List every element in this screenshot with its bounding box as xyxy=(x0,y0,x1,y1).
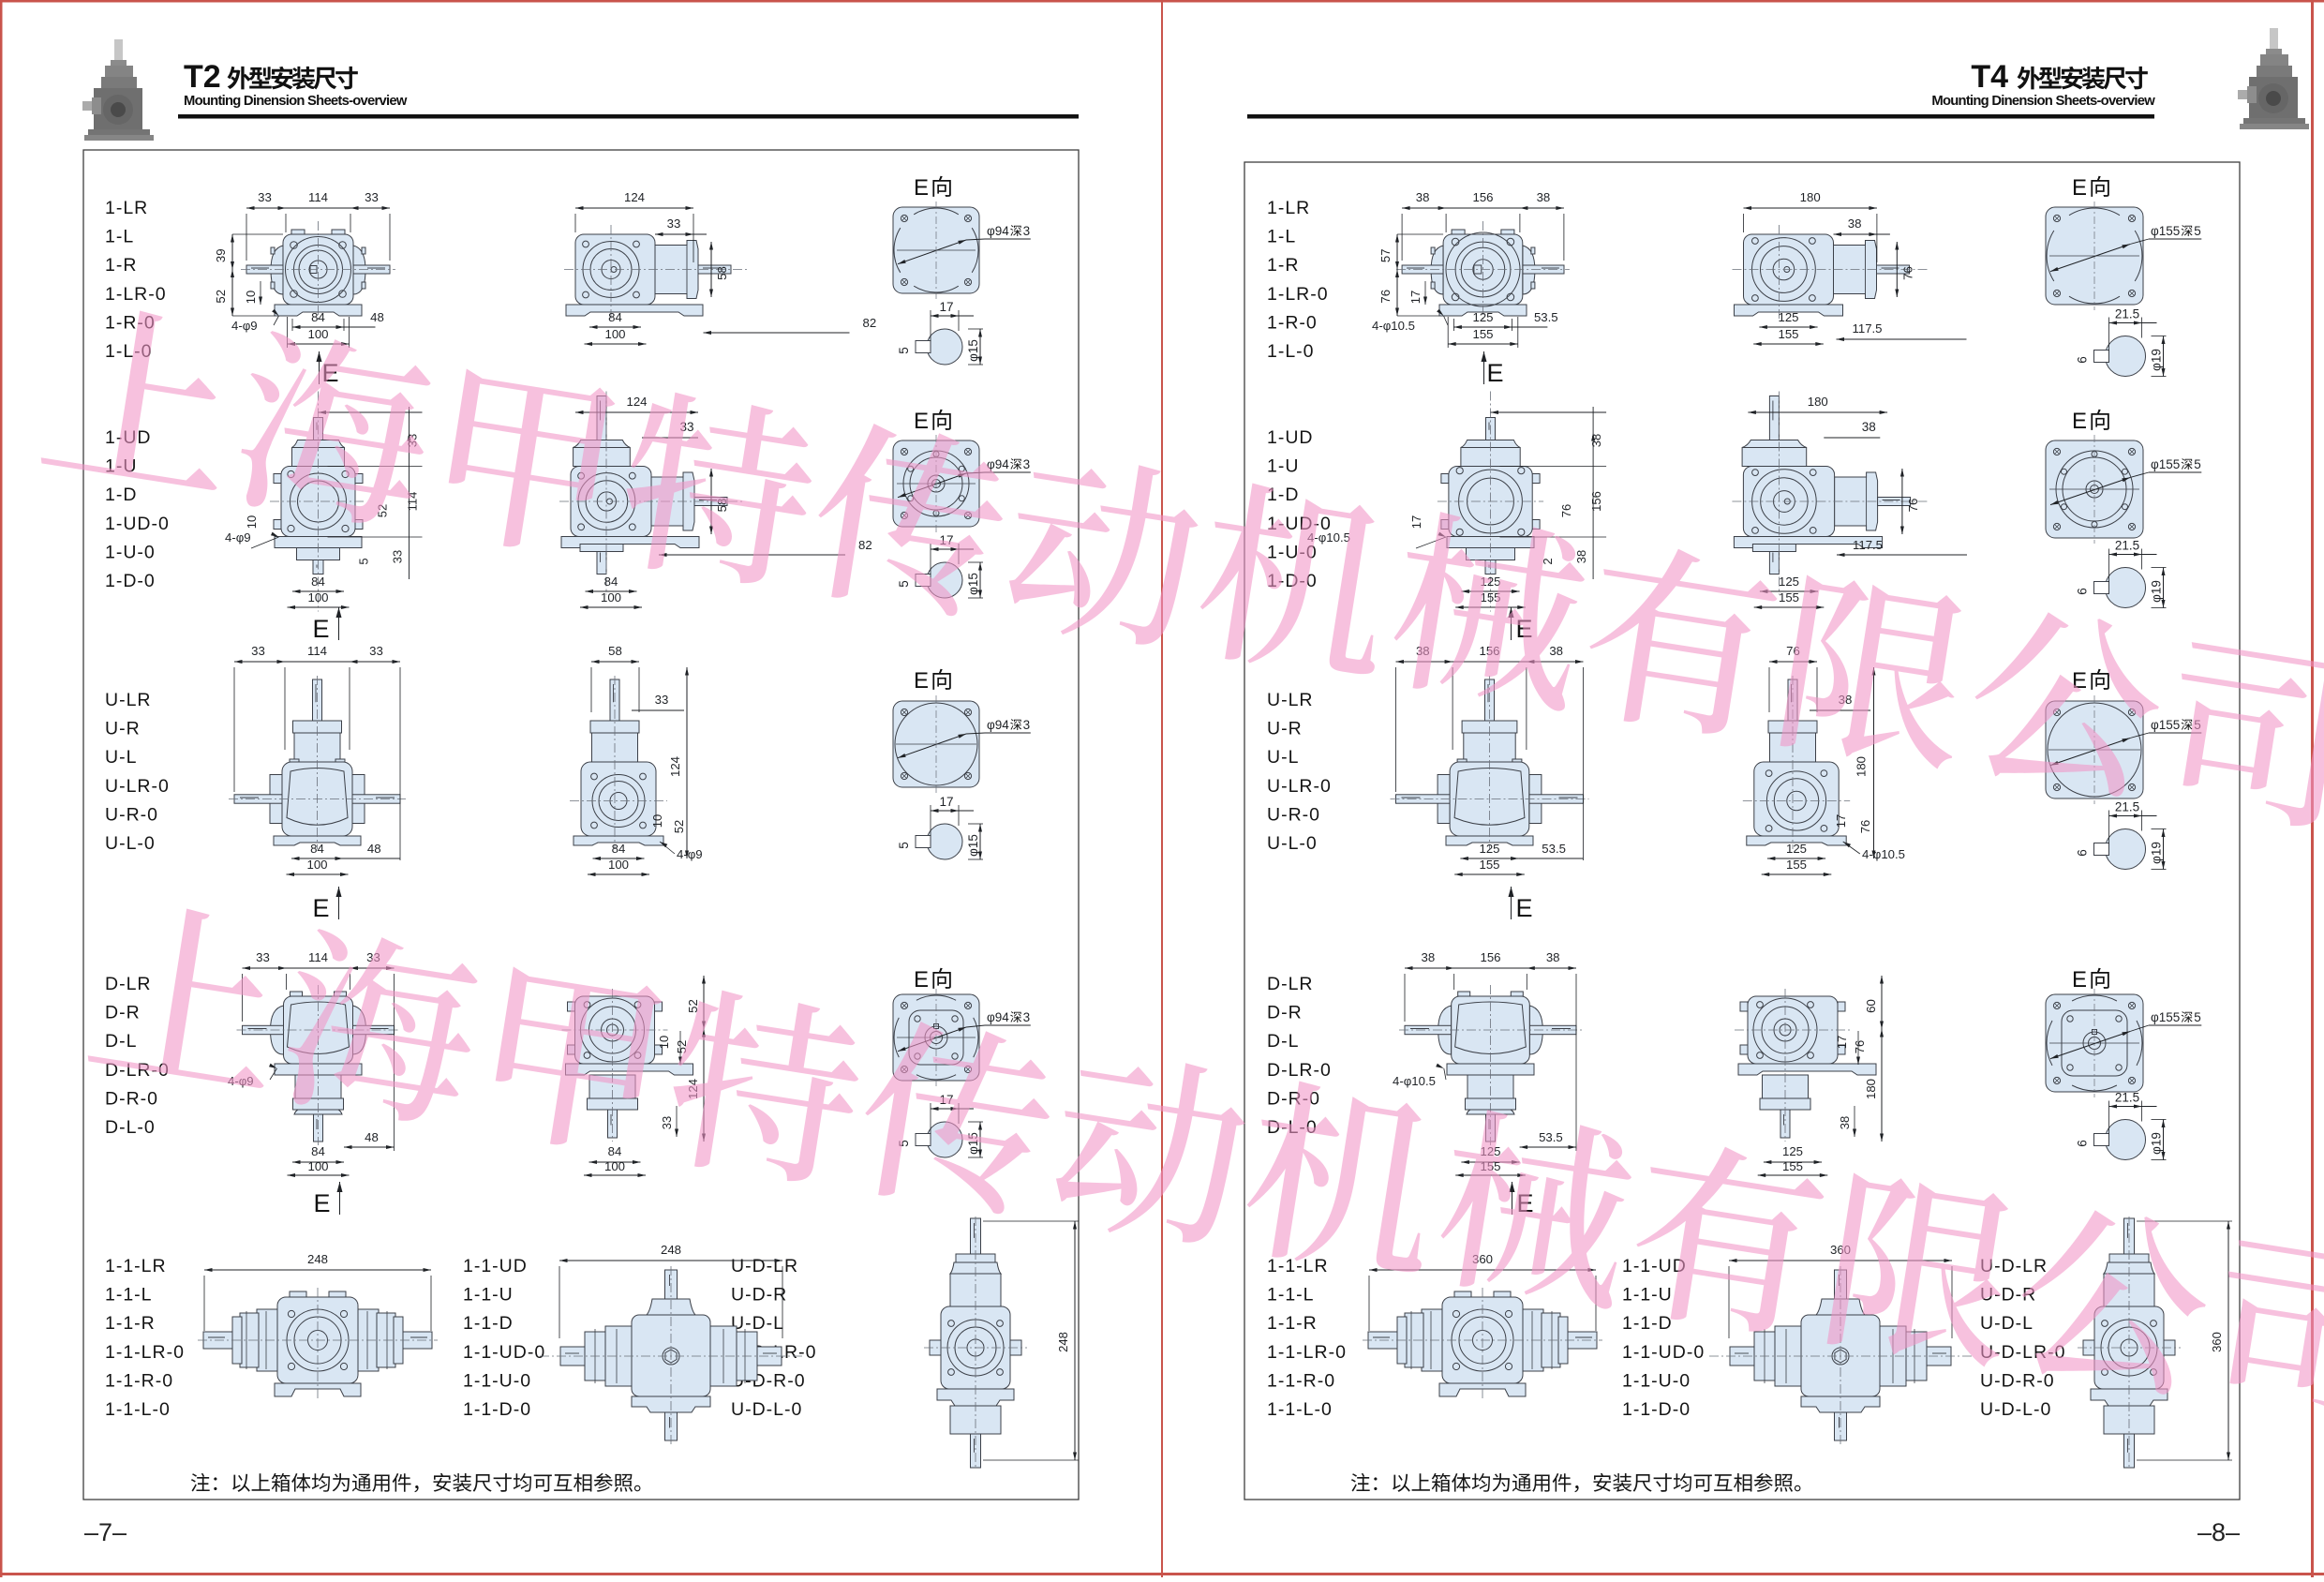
svg-text:5: 5 xyxy=(2194,1010,2201,1024)
svg-text:1-R: 1-R xyxy=(1267,255,1299,276)
svg-text:38: 38 xyxy=(1838,1116,1852,1129)
svg-text:E: E xyxy=(2072,967,2087,992)
svg-text:1-1-D: 1-1-D xyxy=(463,1313,514,1334)
svg-text:φ155: φ155 xyxy=(2151,457,2180,471)
svg-text:33: 33 xyxy=(365,190,379,204)
svg-text:1-L-0: 1-L-0 xyxy=(1267,341,1315,362)
svg-text:U-R-0: U-R-0 xyxy=(1267,804,1320,825)
svg-text:33: 33 xyxy=(258,190,272,204)
svg-text:84: 84 xyxy=(612,842,626,856)
svg-text:125: 125 xyxy=(1782,1144,1803,1158)
svg-text:21.5: 21.5 xyxy=(2115,1091,2139,1105)
svg-text:33: 33 xyxy=(667,216,681,231)
svg-text:57: 57 xyxy=(1378,248,1393,262)
svg-text:E: E xyxy=(914,175,929,201)
svg-text:84: 84 xyxy=(310,842,324,856)
svg-text:76: 76 xyxy=(1906,499,1920,513)
svg-text:E: E xyxy=(313,1189,330,1217)
svg-text:6: 6 xyxy=(2076,849,2090,857)
svg-text:–8–: –8– xyxy=(2197,1518,2240,1546)
svg-text:φ19: φ19 xyxy=(2149,580,2163,603)
svg-text:D-LR: D-LR xyxy=(1267,974,1314,994)
svg-text:1-1-U-0: 1-1-U-0 xyxy=(1622,1370,1691,1391)
svg-text:U-L: U-L xyxy=(105,747,137,768)
svg-text:117.5: 117.5 xyxy=(1853,321,1883,336)
svg-text:100: 100 xyxy=(604,1159,625,1173)
svg-text:D-LR-0: D-LR-0 xyxy=(1267,1060,1332,1081)
svg-text:60: 60 xyxy=(1864,999,1878,1013)
svg-text:10: 10 xyxy=(657,1036,671,1049)
svg-text:155: 155 xyxy=(1782,1159,1803,1173)
svg-text:φ15: φ15 xyxy=(966,834,980,857)
svg-text:38: 38 xyxy=(1421,950,1435,964)
svg-text:E: E xyxy=(914,409,929,434)
svg-text:156: 156 xyxy=(1480,950,1500,964)
svg-text:U-R-0: U-R-0 xyxy=(105,804,158,825)
svg-text:100: 100 xyxy=(608,858,629,872)
svg-text:1-1-L-0: 1-1-L-0 xyxy=(105,1399,171,1420)
svg-text:76: 76 xyxy=(1853,1040,1867,1053)
svg-text:1-LR-0: 1-LR-0 xyxy=(105,284,167,305)
svg-text:5: 5 xyxy=(2194,224,2201,238)
svg-text:38: 38 xyxy=(1574,550,1588,563)
svg-text:3: 3 xyxy=(1023,1010,1031,1024)
svg-text:D-LR: D-LR xyxy=(105,974,152,994)
svg-text:U-LR: U-LR xyxy=(105,690,152,710)
svg-text:33: 33 xyxy=(251,644,265,658)
svg-text:φ19: φ19 xyxy=(2149,842,2163,864)
svg-text:5: 5 xyxy=(897,347,911,354)
svg-text:1-1-R-0: 1-1-R-0 xyxy=(1267,1370,1335,1391)
svg-text:155: 155 xyxy=(1786,858,1807,872)
svg-text:1-1-L-0: 1-1-L-0 xyxy=(1267,1399,1333,1420)
svg-text:155: 155 xyxy=(1778,327,1798,341)
svg-text:1-UD: 1-UD xyxy=(1267,427,1314,448)
svg-text:1-L: 1-L xyxy=(105,227,134,247)
svg-text:17: 17 xyxy=(1835,1036,1849,1049)
svg-text:38: 38 xyxy=(1589,434,1603,447)
svg-text:φ94: φ94 xyxy=(987,718,1009,732)
svg-text:E: E xyxy=(2072,175,2087,201)
svg-text:1-1-D-0: 1-1-D-0 xyxy=(463,1399,531,1420)
svg-text:100: 100 xyxy=(601,590,621,604)
svg-text:38: 38 xyxy=(1549,644,1563,658)
svg-text:58: 58 xyxy=(715,266,729,280)
svg-text:52: 52 xyxy=(214,290,228,304)
svg-text:φ94: φ94 xyxy=(987,224,1009,238)
svg-text:1-1-D: 1-1-D xyxy=(1622,1313,1673,1334)
svg-text:180: 180 xyxy=(1808,395,1828,409)
svg-text:5: 5 xyxy=(2194,457,2201,471)
svg-text:6: 6 xyxy=(2076,1140,2090,1147)
svg-text:1-1-LR: 1-1-LR xyxy=(105,1256,167,1276)
svg-text:D-R-0: D-R-0 xyxy=(105,1088,158,1109)
svg-text:248: 248 xyxy=(661,1243,681,1257)
svg-text:D-R: D-R xyxy=(1267,1003,1303,1023)
svg-text:1-1-R: 1-1-R xyxy=(105,1313,156,1334)
svg-text:1-1-UD: 1-1-UD xyxy=(463,1256,528,1276)
svg-text:33: 33 xyxy=(256,950,270,964)
svg-text:φ94: φ94 xyxy=(987,1010,1009,1024)
svg-text:53.5: 53.5 xyxy=(1539,1130,1563,1144)
svg-text:156: 156 xyxy=(1589,491,1603,512)
svg-text:48: 48 xyxy=(370,310,384,324)
svg-text:4-φ9: 4-φ9 xyxy=(231,319,258,333)
svg-text:4-φ10.5: 4-φ10.5 xyxy=(1862,847,1905,861)
svg-text:U-LR-0: U-LR-0 xyxy=(105,776,170,797)
svg-text:1-U-0: 1-U-0 xyxy=(105,542,156,562)
svg-text:156: 156 xyxy=(1472,190,1493,204)
svg-text:φ155: φ155 xyxy=(2151,718,2180,732)
svg-text:1-LR: 1-LR xyxy=(1267,198,1310,218)
svg-text:100: 100 xyxy=(307,590,328,604)
svg-text:38: 38 xyxy=(1537,190,1551,204)
svg-text:1-1-U-0: 1-1-U-0 xyxy=(463,1370,531,1391)
svg-text:10: 10 xyxy=(245,515,259,529)
svg-text:3: 3 xyxy=(1023,718,1031,732)
svg-text:U-D-LR: U-D-LR xyxy=(731,1256,798,1276)
svg-text:1-1-L: 1-1-L xyxy=(105,1285,153,1306)
svg-text:φ15: φ15 xyxy=(966,573,980,595)
svg-text:125: 125 xyxy=(1779,575,1799,589)
svg-text:U-L-0: U-L-0 xyxy=(105,833,156,854)
svg-text:U-L-0: U-L-0 xyxy=(1267,833,1318,854)
svg-text:17: 17 xyxy=(1409,515,1423,529)
svg-text:114: 114 xyxy=(308,190,328,204)
svg-text:125: 125 xyxy=(1778,310,1798,324)
svg-text:84: 84 xyxy=(608,1144,622,1158)
svg-text:76: 76 xyxy=(1900,266,1914,280)
svg-text:φ15: φ15 xyxy=(966,339,980,362)
svg-text:T2: T2 xyxy=(184,59,221,95)
svg-text:1-1-LR-0: 1-1-LR-0 xyxy=(1267,1342,1347,1363)
svg-text:U-L: U-L xyxy=(1267,747,1299,768)
svg-text:U-D-L: U-D-L xyxy=(1980,1313,2033,1334)
svg-text:10: 10 xyxy=(650,814,664,828)
svg-text:21.5: 21.5 xyxy=(2115,307,2139,321)
svg-text:114: 114 xyxy=(308,950,328,964)
svg-text:84: 84 xyxy=(311,575,325,589)
svg-text:E: E xyxy=(312,615,329,643)
svg-text:6: 6 xyxy=(2076,356,2090,364)
svg-text:D-R: D-R xyxy=(105,1003,141,1023)
svg-text:E: E xyxy=(312,894,329,922)
svg-text:248: 248 xyxy=(307,1252,328,1266)
svg-text:125: 125 xyxy=(1786,842,1807,856)
svg-text:17: 17 xyxy=(939,300,953,314)
svg-text:1-R-0: 1-R-0 xyxy=(1267,312,1318,333)
svg-text:33: 33 xyxy=(369,644,383,658)
svg-text:1-D: 1-D xyxy=(105,485,137,505)
svg-text:D-L: D-L xyxy=(105,1031,137,1052)
svg-text:5: 5 xyxy=(897,580,911,588)
svg-text:3: 3 xyxy=(1023,457,1031,471)
svg-text:360: 360 xyxy=(2210,1332,2224,1352)
svg-text:117.5: 117.5 xyxy=(1853,538,1883,552)
svg-text:33: 33 xyxy=(391,550,405,563)
svg-text:33: 33 xyxy=(660,1116,674,1129)
svg-text:84: 84 xyxy=(311,1144,325,1158)
svg-text:Mounting Dinension Sheets-over: Mounting Dinension Sheets-overview xyxy=(184,94,408,109)
svg-text:φ155: φ155 xyxy=(2151,224,2180,238)
svg-text:E: E xyxy=(914,668,929,694)
svg-text:38: 38 xyxy=(1862,420,1876,434)
svg-text:38: 38 xyxy=(1546,950,1560,964)
svg-text:39: 39 xyxy=(214,248,228,262)
svg-text:E: E xyxy=(2072,409,2087,434)
svg-text:1-1-D-0: 1-1-D-0 xyxy=(1622,1399,1691,1420)
svg-text:D-L: D-L xyxy=(1267,1031,1299,1052)
svg-text:4-φ9: 4-φ9 xyxy=(225,530,251,545)
svg-text:82: 82 xyxy=(858,538,872,552)
svg-text:1-1-UD-0: 1-1-UD-0 xyxy=(1622,1342,1705,1363)
svg-text:84: 84 xyxy=(604,575,618,589)
svg-text:U-R: U-R xyxy=(1267,719,1303,739)
svg-text:38: 38 xyxy=(1416,190,1430,204)
svg-text:17: 17 xyxy=(1408,291,1423,304)
svg-text:53.5: 53.5 xyxy=(1542,842,1566,856)
svg-text:180: 180 xyxy=(1800,190,1821,204)
svg-text:180: 180 xyxy=(1864,1079,1878,1099)
svg-text:1-LR: 1-LR xyxy=(105,198,148,218)
svg-text:φ19: φ19 xyxy=(2149,1132,2163,1155)
svg-text:76: 76 xyxy=(1559,504,1573,517)
svg-text:U-LR-0: U-LR-0 xyxy=(1267,776,1332,797)
svg-text:248: 248 xyxy=(1056,1332,1070,1352)
svg-text:124: 124 xyxy=(668,756,682,777)
svg-text:100: 100 xyxy=(307,327,328,341)
svg-text:100: 100 xyxy=(604,327,625,341)
svg-text:U-D-R: U-D-R xyxy=(731,1285,787,1306)
svg-text:21.5: 21.5 xyxy=(2115,539,2139,553)
svg-text:21.5: 21.5 xyxy=(2115,800,2139,814)
svg-text:76: 76 xyxy=(1858,820,1872,833)
svg-text:1-1-R-0: 1-1-R-0 xyxy=(105,1370,173,1391)
svg-text:–7–: –7– xyxy=(84,1518,127,1546)
svg-text:53.5: 53.5 xyxy=(1534,310,1558,324)
svg-text:100: 100 xyxy=(307,1159,328,1173)
svg-text:6: 6 xyxy=(2076,588,2090,595)
svg-text:38: 38 xyxy=(1848,216,1862,231)
svg-text:1-U: 1-U xyxy=(1267,456,1299,477)
svg-text:U-R: U-R xyxy=(105,719,141,739)
svg-text:1-1-UD-0: 1-1-UD-0 xyxy=(463,1342,545,1363)
svg-text:10: 10 xyxy=(244,291,258,304)
svg-text:U-D-L-0: U-D-L-0 xyxy=(731,1399,802,1420)
svg-text:E: E xyxy=(1486,359,1503,387)
svg-text:1-1-R: 1-1-R xyxy=(1267,1313,1318,1334)
svg-text:33: 33 xyxy=(655,693,669,707)
svg-text:17: 17 xyxy=(939,795,953,809)
svg-text:114: 114 xyxy=(307,644,327,658)
svg-text:76: 76 xyxy=(1378,290,1393,304)
svg-text:82: 82 xyxy=(863,316,877,330)
svg-text:D-L-0: D-L-0 xyxy=(105,1117,156,1138)
svg-text:48: 48 xyxy=(365,1130,379,1144)
svg-text:φ155: φ155 xyxy=(2151,1010,2180,1024)
svg-text:1-1-LR-0: 1-1-LR-0 xyxy=(105,1342,185,1363)
svg-text:100: 100 xyxy=(306,858,327,872)
svg-text:125: 125 xyxy=(1479,842,1499,856)
svg-text:124: 124 xyxy=(624,190,645,204)
svg-text:84: 84 xyxy=(311,310,325,324)
svg-text:155: 155 xyxy=(1779,590,1799,604)
svg-text:4-φ9: 4-φ9 xyxy=(677,847,703,861)
svg-text:1-R: 1-R xyxy=(105,255,137,276)
svg-text:1-L: 1-L xyxy=(1267,227,1296,247)
svg-text:125: 125 xyxy=(1472,310,1493,324)
svg-text:1-1-L: 1-1-L xyxy=(1267,1285,1315,1306)
svg-text:1-1-U: 1-1-U xyxy=(1622,1285,1673,1306)
svg-text:4-φ10.5: 4-φ10.5 xyxy=(1372,319,1415,333)
svg-text:5: 5 xyxy=(897,842,911,849)
svg-text:φ19: φ19 xyxy=(2149,349,2163,371)
svg-text:U-D-L: U-D-L xyxy=(731,1313,784,1334)
svg-text:1-UD-0: 1-UD-0 xyxy=(105,514,170,534)
svg-text:58: 58 xyxy=(608,644,622,658)
svg-text:1-D: 1-D xyxy=(1267,485,1299,505)
svg-text:1-1-UD: 1-1-UD xyxy=(1622,1256,1687,1276)
svg-text:124: 124 xyxy=(626,395,647,409)
svg-text:1-LR-0: 1-LR-0 xyxy=(1267,284,1329,305)
svg-text:1-D-0: 1-D-0 xyxy=(105,571,156,591)
svg-text:155: 155 xyxy=(1479,858,1499,872)
svg-text:U-LR: U-LR xyxy=(1267,690,1314,710)
svg-text:E: E xyxy=(914,967,929,992)
svg-text:180: 180 xyxy=(1854,756,1868,777)
svg-text:155: 155 xyxy=(1472,327,1493,341)
svg-text:E: E xyxy=(1515,894,1532,922)
svg-text:84: 84 xyxy=(608,310,622,324)
svg-text:52: 52 xyxy=(672,820,686,833)
svg-text:1-1-U: 1-1-U xyxy=(463,1285,514,1306)
svg-text:U-D-L-0: U-D-L-0 xyxy=(1980,1399,2051,1420)
svg-text:T4: T4 xyxy=(1971,59,2008,95)
svg-text:Mounting Dinension Sheets-over: Mounting Dinension Sheets-overview xyxy=(1931,94,2155,109)
svg-text:48: 48 xyxy=(367,842,381,856)
svg-text:17: 17 xyxy=(1834,814,1848,828)
svg-text:3: 3 xyxy=(1023,224,1031,238)
svg-text:4-φ10.5: 4-φ10.5 xyxy=(1393,1074,1436,1088)
svg-text:5: 5 xyxy=(357,558,371,564)
